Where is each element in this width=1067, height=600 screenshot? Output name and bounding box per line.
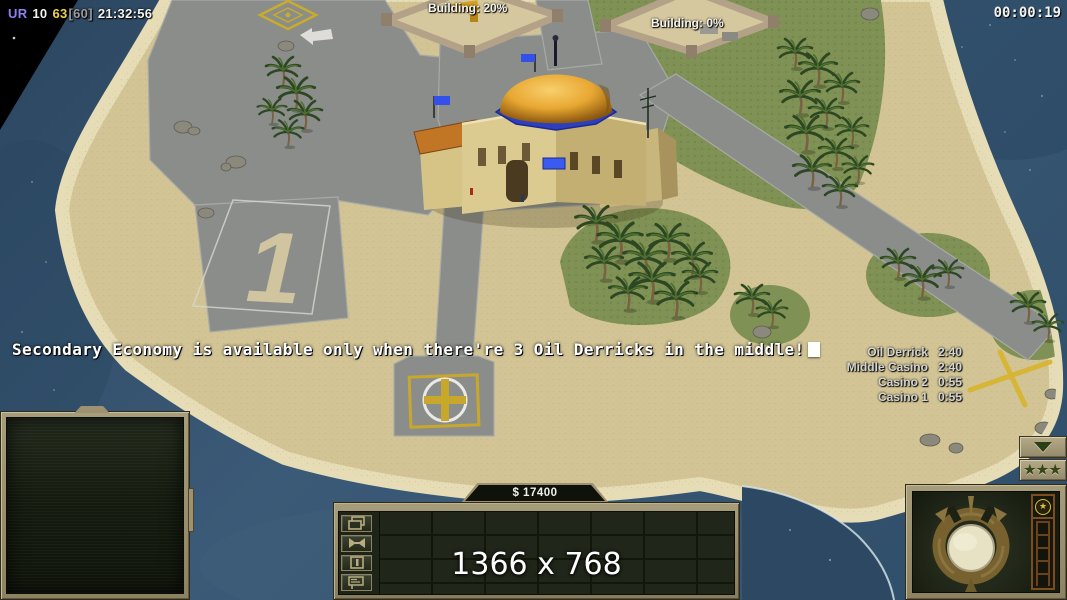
cascade-windows-icon [348, 516, 366, 530]
money-display: $ 17400 [461, 483, 609, 503]
generals-powers-button[interactable]: ★★★ [1019, 459, 1067, 481]
queue-item-time: 0:55 [938, 375, 962, 390]
faction-side-panel: ★ [905, 484, 1067, 600]
building-progress-label-1: Building: 20% [428, 1, 507, 15]
chevron-down-icon [1034, 442, 1052, 452]
three-stars-icon: ★★★ [1024, 462, 1062, 478]
rank-badge: ★ [1033, 496, 1053, 519]
building-progress-label-2: Building: 0% [651, 16, 724, 30]
rank-slots [1036, 521, 1050, 586]
command-bar: 1366 x 768 [333, 502, 740, 600]
production-queue: Oil Derrick 2:40 Middle Casino 2:40 Casi… [847, 345, 962, 405]
gla-faction-emblem [915, 492, 1033, 594]
rank-progress-strip: ★ [1031, 494, 1055, 590]
signboard-icon [348, 576, 365, 590]
perf-fps: 10 [32, 6, 47, 21]
rts-game-screen: { "hud": { "perf": {"tag": "UR", "fps": … [0, 0, 1067, 600]
performance-stats: UR1063[60]21:32:56 [8, 6, 157, 21]
queue-item: Oil Derrick 2:40 [847, 345, 962, 360]
queue-item-time: 2:40 [938, 345, 962, 360]
money-amount: $ 17400 [512, 487, 557, 499]
signboard-button[interactable] [341, 574, 372, 591]
queue-item-time: 0:55 [938, 390, 962, 405]
queue-item: Middle Casino 2:40 [847, 360, 962, 375]
queue-item-name: Casino 1 [878, 390, 928, 405]
perf-tag: UR [8, 6, 27, 21]
queue-item: Casino 2 0:55 [847, 375, 962, 390]
match-timer: 00:00:19 [994, 5, 1061, 21]
perf-cap: [60] [69, 6, 93, 21]
radar-minimap-panel [0, 411, 190, 600]
command-bar-buttons [339, 512, 379, 594]
perf-score: 63 [52, 6, 67, 21]
perf-clock: 21:32:56 [98, 6, 152, 21]
resolution-watermark: 1366 x 768 [451, 547, 621, 582]
queue-item: Casino 1 0:55 [847, 390, 962, 405]
chat-input-line[interactable]: Secondary Economy is available only when… [12, 340, 820, 359]
faction-emblem-screen: ★ [912, 491, 1060, 593]
pause-frame-icon [350, 556, 364, 569]
bowtie-icon [348, 537, 366, 549]
radar-screen[interactable] [6, 417, 184, 594]
collapse-panel-button[interactable] [1019, 436, 1067, 458]
queue-item-name: Oil Derrick [867, 345, 928, 360]
star-icon: ★ [1035, 499, 1051, 515]
bowtie-button[interactable] [341, 535, 372, 552]
chat-message-text: Secondary Economy is available only when… [12, 340, 805, 359]
queue-item-time: 2:40 [938, 360, 962, 375]
queue-item-name: Casino 2 [878, 375, 928, 390]
queue-item-name: Middle Casino [847, 360, 928, 375]
chat-cursor [808, 342, 820, 357]
pause-frame-button[interactable] [341, 555, 372, 572]
radar-side-tab[interactable] [188, 488, 194, 532]
cascade-windows-button[interactable] [341, 515, 372, 532]
